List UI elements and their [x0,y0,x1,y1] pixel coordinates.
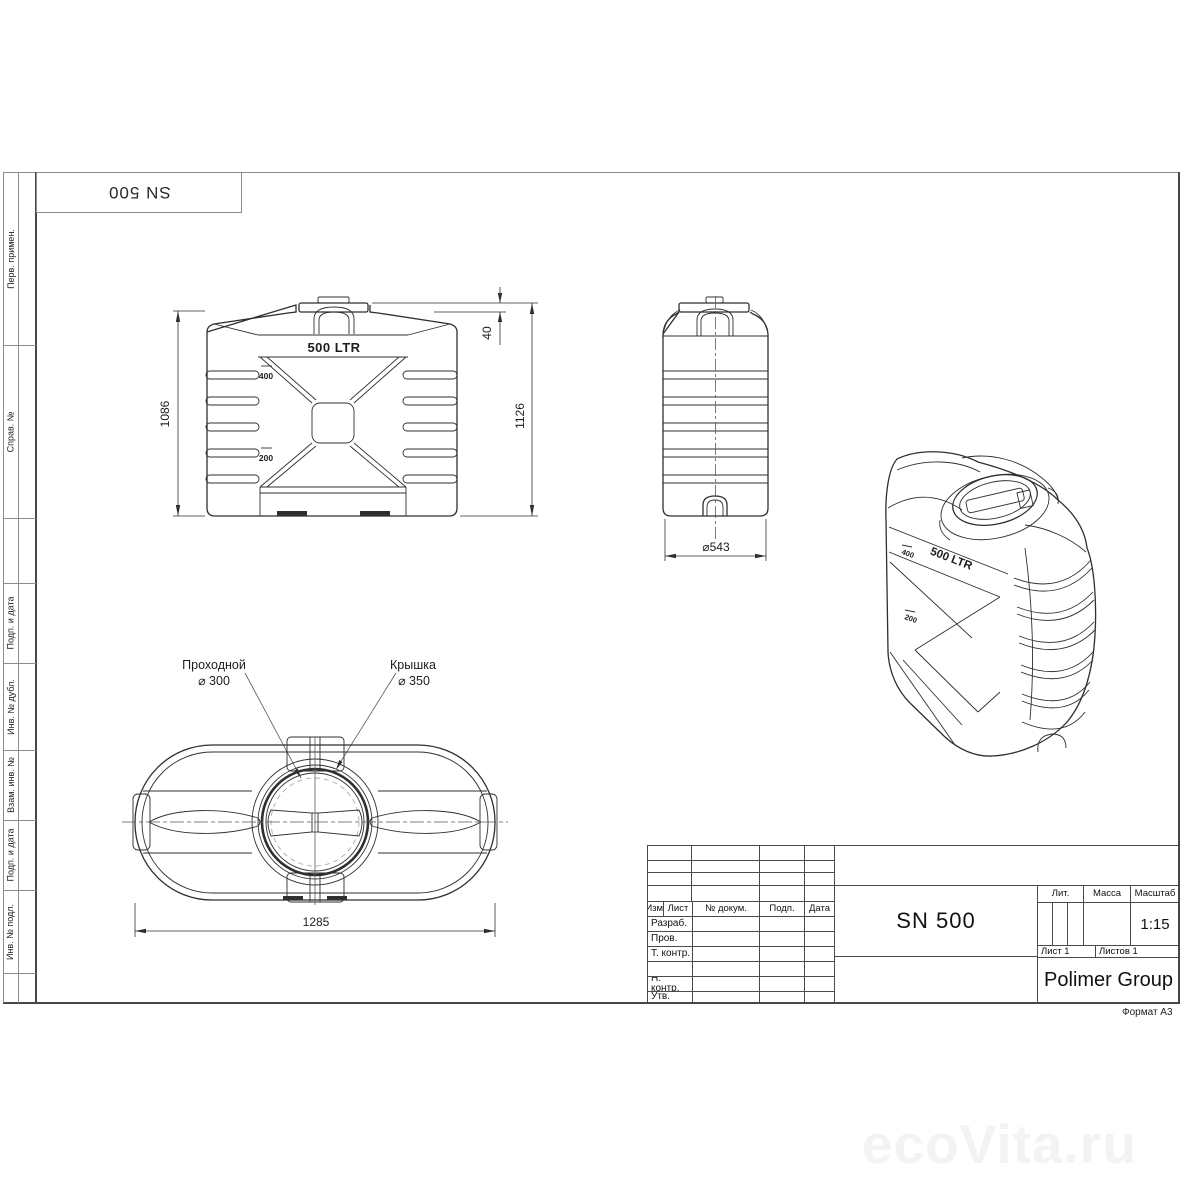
front-volume-label: 500 LTR [307,340,360,355]
front-view-drawing: 500 LTR 400 200 1086 1126 40 [150,272,560,572]
rev-cell [691,872,760,886]
margin-label-podp-data-1: Подп. и дата [3,583,18,663]
rev-cell [691,845,760,861]
mass-header: Масса [1083,885,1131,903]
margin-label-inv-dubl: Инв. № дубл. [3,663,18,750]
document-title: SN 500 [834,885,1038,957]
stamp-title: SN 500 [108,182,171,202]
rev-header-doc: № докум. [692,901,760,917]
margin-label-vzam-inv: Взам. инв. № [3,750,18,820]
rev-cell [759,845,805,861]
sig-cell [804,916,835,932]
callout-lid-line2: ⌀ 350 [398,674,430,688]
sig-cell [804,946,835,962]
dim-diameter-543: ⌀543 [702,540,730,554]
title-block: Изм. Лист № докум. Подп. Дата Разраб. Пр… [647,845,1180,1003]
rev-cell [647,885,692,902]
row-razrab: Разраб. [647,916,693,932]
company-name: Polimer Group [1037,957,1180,1003]
sig-cell [692,916,760,932]
row-tkontr: Т. контр. [647,946,693,962]
margin-label-perv-primen: Перв. примен. [3,172,18,345]
row-nkontr: Н. контр. [647,976,693,992]
iso-level-200: 200 [903,612,918,625]
sig-cell [804,991,835,1003]
front-level-200: 200 [259,453,273,463]
rev-cell [759,872,805,886]
rev-cell [804,845,835,861]
mass-cell [1083,902,1131,946]
sig-cell [692,961,760,977]
frame-left-line [35,172,37,1004]
drawing-sheet: { "page": { "format_label": "Формат А3",… [0,0,1195,1196]
sig-cell [759,991,805,1003]
lit-cell [1067,902,1084,946]
callout-pass-line2: ⌀ 300 [198,674,230,688]
strip-divider-line [18,172,19,1003]
rev-cell [647,845,692,861]
sig-cell [692,931,760,947]
sig-cell [804,976,835,992]
lit-cell [1037,902,1053,946]
sig-cell [804,931,835,947]
scale-value: 1:15 [1130,902,1180,946]
rev-header-list: Лист [663,901,693,917]
strip-sep [3,973,36,974]
dim-height-1086: 1086 [158,400,172,427]
lit-header: Лит. [1037,885,1084,903]
sig-cell [692,946,760,962]
callout-pass-line1: Проходной [182,658,246,672]
top-left-stamp: SN 500 [36,172,242,213]
margin-label-podp-data-2: Подп. и дата [3,820,18,890]
row-empty [647,961,693,977]
margin-label-inv-podl: Инв. № подл. [3,890,18,973]
dim-lid-40: 40 [480,326,494,340]
rev-cell [691,885,760,902]
rev-cell [804,872,835,886]
format-label: Формат А3 [1122,1007,1173,1018]
rev-header-sign: Подп. [759,901,805,917]
iso-volume-label: 500 LTR [928,546,974,573]
sig-cell [759,961,805,977]
lit-cell [1052,902,1068,946]
rev-cell [647,872,692,886]
row-prov: Пров. [647,931,693,947]
sig-cell [759,946,805,962]
top-view-drawing: Проходной ⌀ 300 Крышка ⌀ 350 1285 [108,635,528,960]
side-view-drawing: ⌀543 [612,272,812,572]
strip-sep [3,518,36,519]
sig-cell [759,916,805,932]
sig-cell [804,961,835,977]
callout-lid-line1: Крышка [390,658,436,672]
iso-level-400: 400 [900,547,915,560]
rev-cell [804,885,835,902]
sig-cell [759,976,805,992]
row-utv: Утв. [647,991,693,1003]
dim-height-1126: 1126 [513,403,527,429]
sig-cell [692,976,760,992]
sig-cell [759,931,805,947]
watermark-logo: ecoVita.ru [862,1112,1137,1176]
sig-cell [692,991,760,1003]
front-level-400: 400 [259,371,273,381]
margin-label-sprav: Справ. № [3,345,18,518]
doc-number-strip [834,845,1180,886]
rev-header-izm: Изм. [647,901,664,917]
scale-header: Масштаб [1130,885,1180,903]
isometric-view-drawing: 500 LTR 400 200 [855,445,1120,785]
rev-header-date: Дата [804,901,835,917]
material-cell [834,956,1038,1003]
rev-cell [759,885,805,902]
dim-length-1285: 1285 [303,915,330,929]
